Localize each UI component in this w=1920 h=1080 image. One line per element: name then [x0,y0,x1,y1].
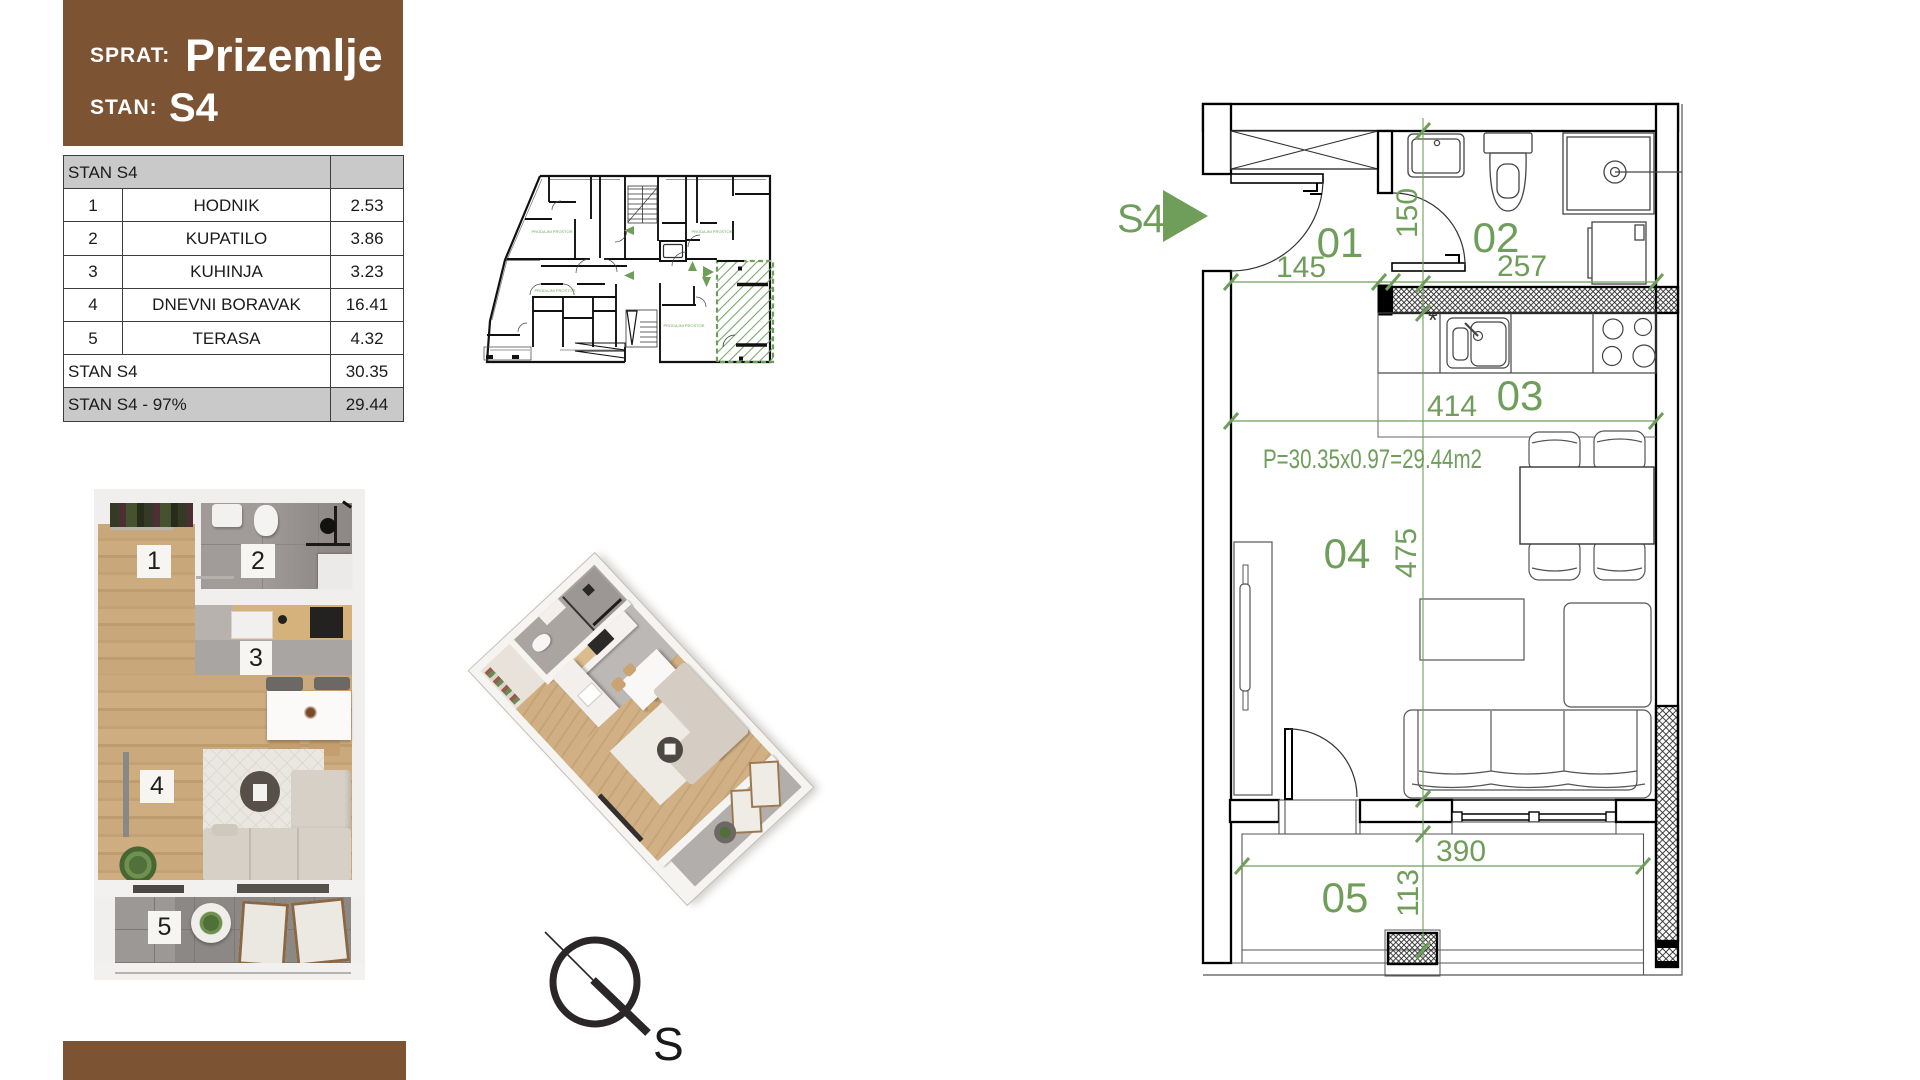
svg-text:PRODAJNI PROSTOR: PRODAJNI PROSTOR [663,323,704,328]
svg-text:113: 113 [1392,869,1425,917]
svg-text:05: 05 [1322,874,1369,921]
svg-text:PRODAJNI PROSTOR: PRODAJNI PROSTOR [534,288,575,293]
svg-text:414: 414 [1427,390,1477,423]
svg-text:01: 01 [1317,219,1364,266]
svg-text:150: 150 [1391,188,1424,238]
svg-text:PRODAJNI PROSTOR: PRODAJNI PROSTOR [691,229,732,234]
svg-text:390: 390 [1436,835,1486,868]
svg-text:03: 03 [1497,372,1544,419]
svg-text:475: 475 [1390,528,1423,578]
svg-text:02: 02 [1473,214,1520,261]
svg-text:*: * [1428,307,1438,335]
svg-text:04: 04 [1324,530,1371,577]
svg-text:PRODAJNI PROSTOR: PRODAJNI PROSTOR [531,229,572,234]
svg-text:S: S [653,1018,684,1070]
svg-text:S4: S4 [1117,197,1165,241]
svg-text:P=30.35x0.97=29.44m2: P=30.35x0.97=29.44m2 [1263,444,1482,474]
